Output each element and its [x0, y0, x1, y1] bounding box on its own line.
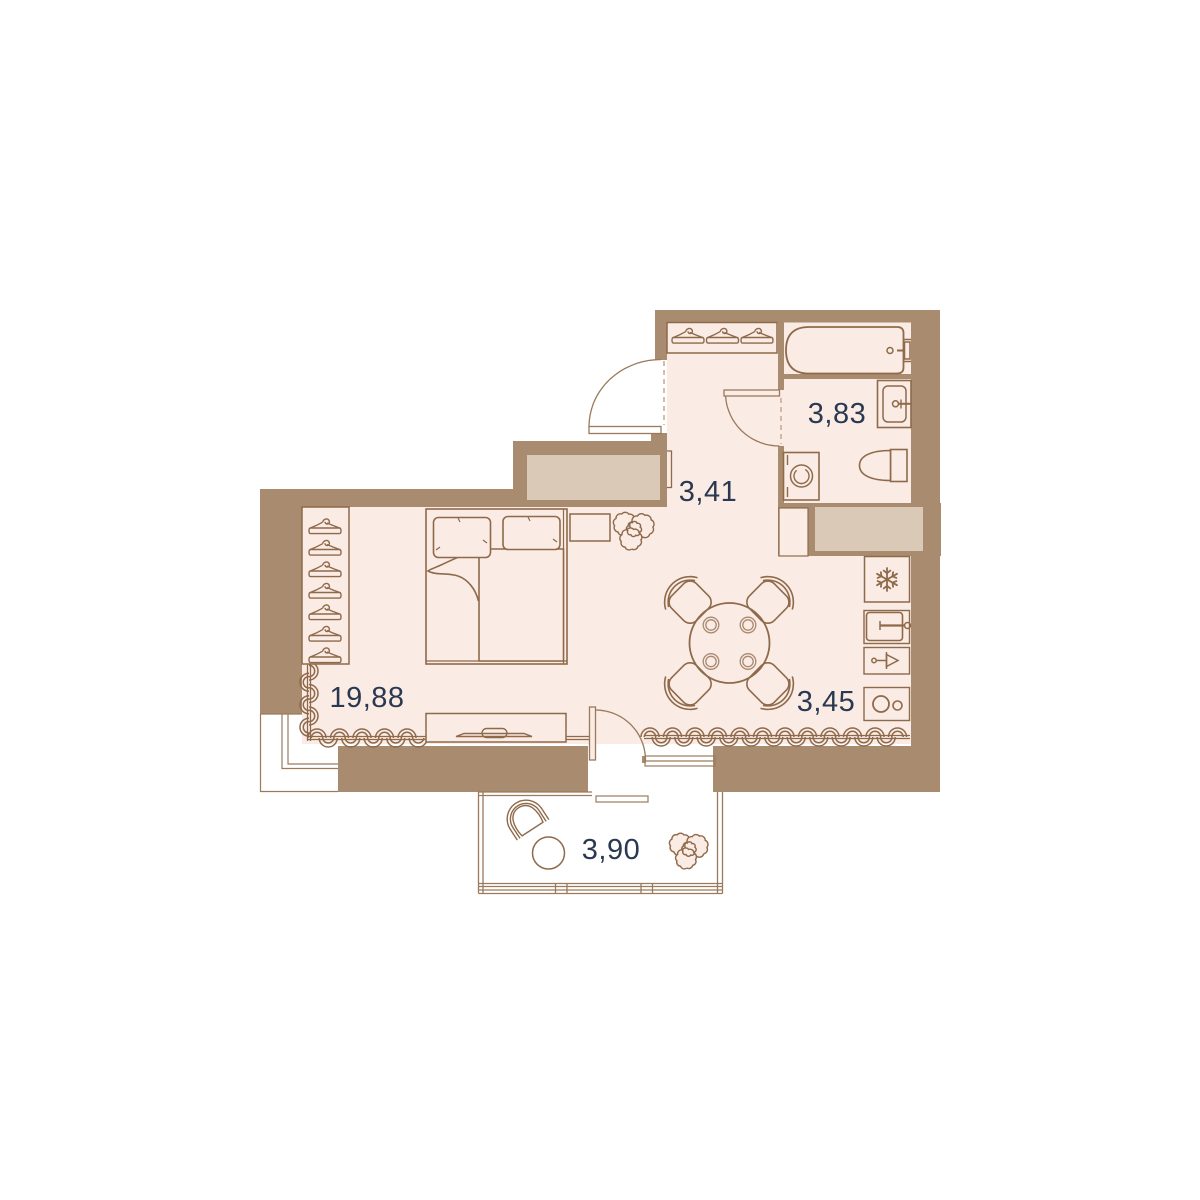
- svg-text:19,88: 19,88: [329, 682, 404, 714]
- svg-text:3,45: 3,45: [797, 686, 855, 718]
- svg-text:3,83: 3,83: [808, 398, 866, 430]
- svg-text:3,41: 3,41: [679, 476, 737, 508]
- svg-text:3,90: 3,90: [582, 834, 640, 866]
